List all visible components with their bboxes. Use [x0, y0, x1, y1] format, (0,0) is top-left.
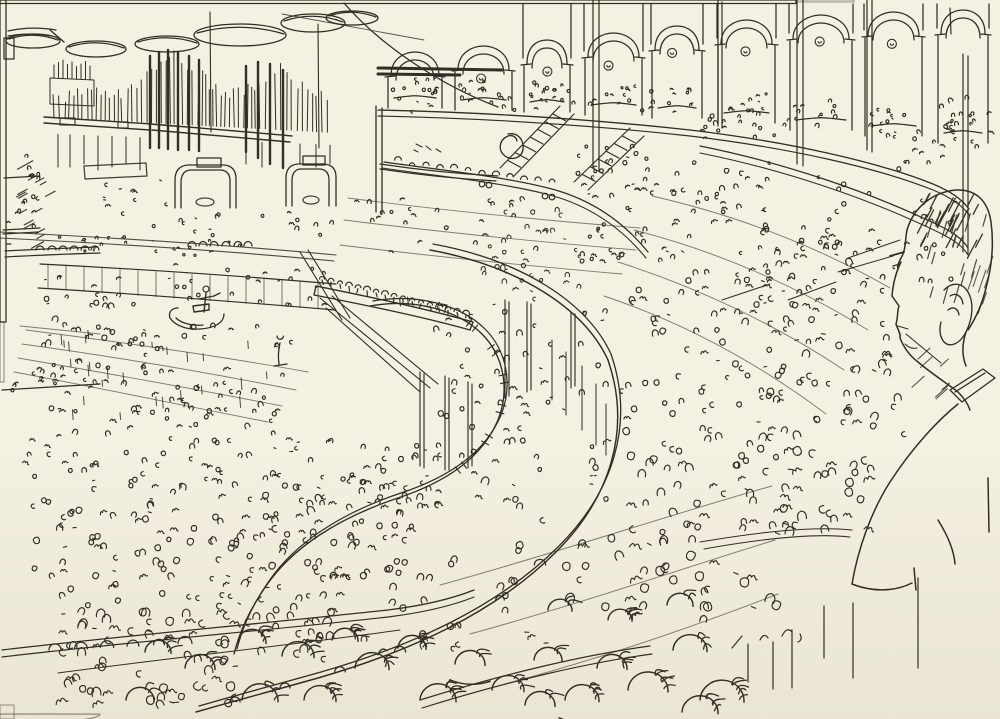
box-parapet [314, 286, 473, 330]
soloist-figure [274, 336, 287, 366]
crowd-near-head-3 [774, 447, 875, 536]
seatback-line [700, 529, 852, 549]
crowd-stalls-mid [603, 422, 802, 544]
staircase-right [574, 128, 644, 190]
floor-pilaster [376, 106, 382, 214]
crowd-arch-3 [533, 81, 564, 101]
seat-row-line [652, 196, 890, 288]
cable-2 [282, 14, 424, 40]
floor-edge [380, 164, 498, 181]
spectator-neck-hatch [912, 348, 950, 399]
crowd-arena-3 [32, 537, 399, 608]
dark-figure-pair [479, 181, 555, 200]
bottom-left-smudge [0, 714, 100, 719]
arena-rail-2 [58, 630, 400, 673]
spectator-ear [940, 284, 972, 345]
foreground-drips [732, 578, 918, 689]
scan-edge-top [0, 0, 796, 4]
crowd-arch-9 [947, 112, 976, 130]
crowd-stalls-upper [620, 277, 837, 419]
spectator-shoulder [852, 404, 989, 590]
arch-interior-dark [196, 196, 319, 206]
disc-lamps [6, 11, 378, 57]
balusters [400, 297, 509, 473]
scan-edge-left [0, 0, 6, 322]
scan-edge-top-fade [796, 0, 854, 2]
crowd-near-head-2 [767, 330, 906, 439]
crowd-arch-5 [667, 88, 692, 106]
crowd-stage-back [179, 211, 334, 236]
crowd-arena-1 [23, 437, 442, 488]
crowd-arch-7 [794, 99, 836, 118]
seat-row-line [505, 594, 778, 684]
aisle-sightlines [722, 240, 900, 300]
sketchbook-page [0, 0, 1000, 719]
scan-edge-left-fade [0, 322, 4, 382]
corner-smudge [0, 705, 14, 719]
crowd-arena-5 [56, 657, 238, 708]
slender-columns [593, 0, 968, 254]
crowd-stalls-low [563, 538, 781, 622]
spectator-collar [950, 369, 995, 402]
crowd-arch-8 [877, 108, 906, 125]
crowd-arch-1 [403, 78, 439, 95]
crowd-gallery-left [391, 86, 676, 113]
music-stands [61, 330, 267, 419]
floor-marks [414, 144, 441, 152]
seat-row-line [604, 296, 826, 414]
crowd-gallery-end [939, 95, 994, 148]
dark-beam [84, 163, 147, 179]
arch-lamps [477, 37, 897, 83]
crowd-gallery-right [880, 130, 974, 164]
stage-arch-right [286, 164, 336, 206]
left-hatch [16, 161, 55, 249]
box-front-lines [38, 264, 336, 310]
crowd-boxes-band [45, 263, 327, 306]
spectator-hair-hatch-2 [927, 211, 986, 304]
spectator-face-profile [892, 230, 970, 410]
crowd-arch-4 [605, 85, 636, 104]
crowd-arch-6 [729, 93, 768, 112]
sketch-canvas [0, 0, 1000, 719]
dark-beam-top [378, 68, 502, 75]
left-shelf-lines [2, 176, 100, 390]
crowd-arena-2 [31, 484, 431, 543]
crowd-under-organ [103, 180, 167, 228]
arcade-arches [385, 4, 991, 143]
crowd-gallery-mid [700, 107, 873, 139]
stage-arch-left [175, 165, 236, 208]
conductor-head [203, 286, 209, 292]
stage-ramp-lines [300, 250, 438, 392]
